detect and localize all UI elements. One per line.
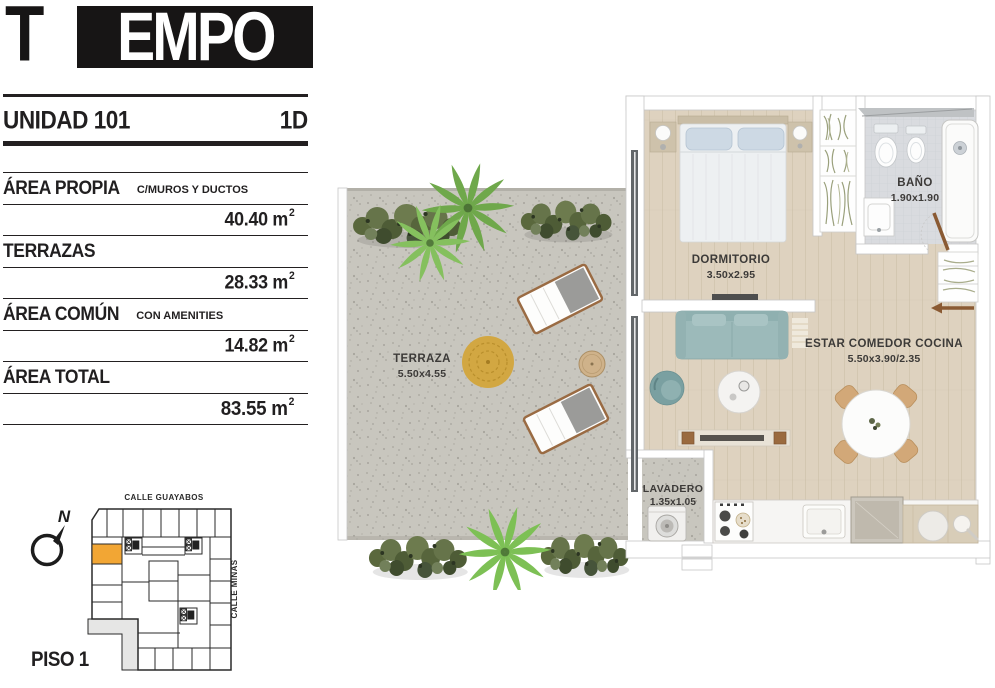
entry-closet	[938, 252, 978, 302]
highlighted-unit	[92, 544, 122, 564]
compass-needle	[53, 525, 65, 545]
pillow	[738, 128, 784, 150]
sofa	[676, 311, 788, 359]
bathtub	[942, 120, 978, 242]
label-dormitorio: DORMITORIO	[692, 254, 771, 266]
kitchen	[713, 497, 978, 543]
refrigerator	[851, 497, 903, 543]
hedge-plants	[541, 534, 629, 578]
terrace-parapet-wall	[338, 188, 347, 540]
area-sublabel: CON AMENITIES	[136, 310, 223, 322]
elevator-core-icon	[186, 539, 199, 551]
bed	[680, 124, 786, 242]
bedroom-dresser	[712, 294, 758, 300]
wall-bedroom-living	[642, 300, 815, 312]
area-value: 14.82 m2	[224, 335, 294, 357]
wall-laundry-east	[704, 450, 713, 543]
dims-dormitorio: 3.50x2.95	[707, 269, 756, 281]
tempo-logo: T EMPO	[5, 6, 310, 70]
area-label-row: TERRAZAS	[3, 235, 308, 267]
dims-terraza: 5.50x4.55	[398, 368, 447, 380]
area-label-row: ÁREA COMÚN CON AMENITIES	[3, 298, 308, 330]
stove	[715, 502, 753, 541]
label-estar: ESTAR COMEDOR COCINA	[805, 338, 963, 350]
logo-letters-empo: EMPO	[117, 2, 273, 73]
terrace-rug	[462, 336, 514, 388]
floor-label: PISO 1	[31, 648, 89, 672]
sidewalk	[88, 619, 138, 670]
dims-lavadero: 1.35x1.05	[650, 497, 697, 508]
exterior-step	[682, 559, 712, 570]
unit-number: UNIDAD 101	[3, 106, 130, 135]
dims-estar: 5.50x3.90/2.35	[848, 353, 921, 365]
label-terraza: TERRAZA	[393, 353, 451, 365]
wall-laundry-top	[626, 450, 712, 458]
terrace	[338, 163, 629, 590]
pillow	[686, 128, 732, 150]
laundry	[648, 506, 686, 541]
dining-set	[832, 382, 920, 466]
area-sublabel: C/MUROS Y DUCTOS	[137, 184, 248, 196]
bed-headboard	[678, 116, 788, 124]
logo-letter-t: T	[5, 0, 41, 70]
toilet	[874, 124, 898, 167]
area-label-row: ÁREA TOTAL	[3, 361, 308, 393]
area-value-row: 40.40 m2	[3, 204, 308, 235]
coffee-table	[718, 371, 760, 413]
logo-black-box: EMPO	[77, 6, 313, 68]
area-label-row: ÁREA PROPIA C/MUROS Y DUCTOS	[3, 172, 308, 204]
bedroom-closet	[820, 110, 856, 232]
area-total-row: 83.55 m2	[3, 393, 308, 424]
area-label: ÁREA PROPIA	[3, 177, 120, 199]
wall-bottom	[626, 541, 990, 558]
brochure-page: T EMPO UNIDAD 101 1D ÁREA PROPIA C/MUROS…	[0, 0, 995, 688]
unit-header: UNIDAD 101 1D	[3, 103, 308, 139]
media-console	[678, 430, 790, 446]
unit-header-divider	[3, 141, 308, 146]
wall-bath-south	[856, 244, 928, 254]
unit-type-code: 1D	[280, 106, 308, 135]
label-bano: BAÑO	[897, 176, 932, 189]
area-value: 28.33 m2	[224, 272, 294, 294]
lamp	[793, 126, 807, 140]
area-value-row: 14.82 m2	[3, 330, 308, 361]
street-label-top: CALLE GUAYABOS	[124, 493, 204, 502]
elevator-core-icon	[181, 609, 194, 621]
bathroom-sink	[864, 198, 894, 236]
area-label: TERRAZAS	[3, 240, 95, 262]
label-lavadero: LAVADERO	[643, 483, 704, 495]
area-label: ÁREA COMÚN	[3, 303, 119, 325]
area-label: ÁREA TOTAL	[3, 366, 110, 388]
wall-top	[626, 96, 988, 110]
building-keyplan: CALLE GUAYABOS CALLE MINAS	[85, 487, 245, 687]
bidet	[906, 126, 926, 163]
hedge-plants	[369, 536, 468, 580]
exterior-step	[682, 545, 712, 557]
area-value-row: 28.33 m2	[3, 267, 308, 298]
counter-wood	[903, 505, 978, 543]
lamp	[656, 126, 671, 141]
elevator-core-icon	[126, 539, 139, 551]
kitchen-sink	[803, 505, 845, 538]
north-label: N	[58, 507, 71, 526]
floorplan: TERRAZA 5.50x4.55 DORMITORIO 3.50x2.95 B…	[330, 90, 995, 590]
area-total-value: 83.55 m2	[221, 398, 294, 421]
cutting-board	[918, 511, 948, 541]
nightstand-right	[788, 122, 812, 152]
nightstand-left	[650, 122, 676, 152]
dims-bano: 1.90x1.90	[891, 192, 940, 204]
area-table-bottom-rule	[3, 424, 308, 425]
armchair	[650, 371, 684, 405]
terrace-side-table	[579, 351, 605, 377]
sliding-glass-doors	[631, 150, 638, 492]
north-compass: N	[10, 500, 90, 570]
area-table: ÁREA PROPIA C/MUROS Y DUCTOS 40.40 m2 TE…	[3, 172, 308, 425]
logo-divider	[3, 94, 308, 97]
area-value: 40.40 m2	[224, 209, 294, 231]
